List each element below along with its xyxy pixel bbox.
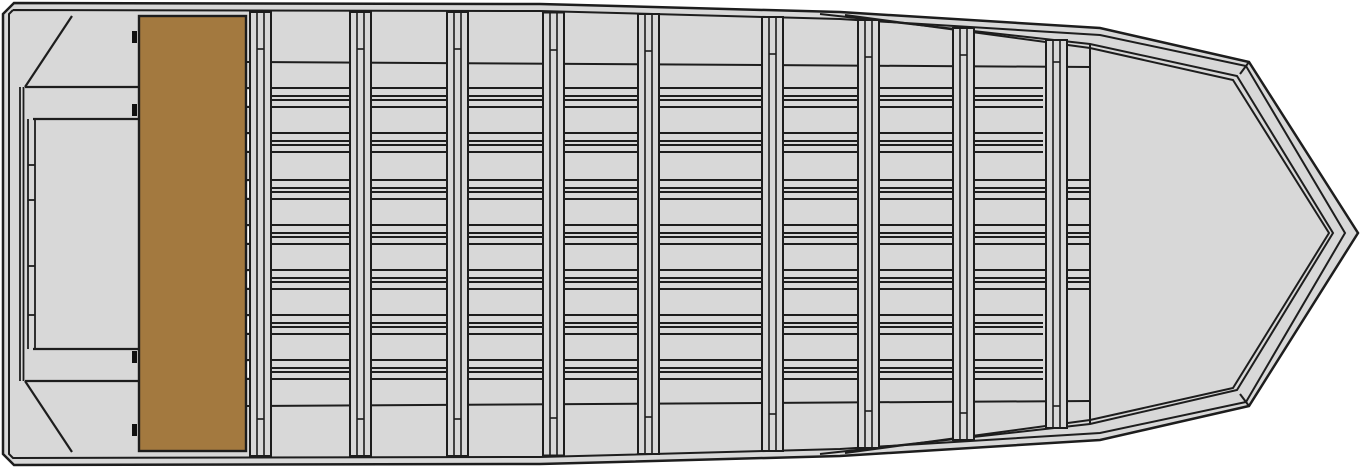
bench-seat — [139, 16, 246, 451]
jon-boat-top-view-diagram — [0, 0, 1366, 468]
jon-boat-diagram-stage — [0, 0, 1366, 468]
